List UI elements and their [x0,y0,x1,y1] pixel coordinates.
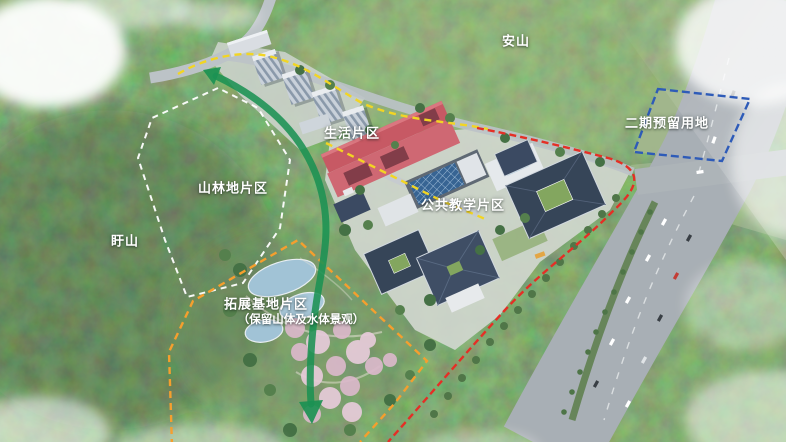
label-anshan: 安山 [502,31,530,50]
label-xushan: 盱山 [111,231,139,250]
site-plan-map: 安山 二期预留用地 生活片区 山林地片区 盱山 公共教学片区 拓展基地片区 （保… [0,0,786,442]
label-forest-zone: 山林地片区 [198,178,268,197]
haze-overlay [0,0,786,442]
label-teaching-zone: 公共教学片区 [421,195,505,214]
label-living-zone: 生活片区 [324,123,380,142]
label-expansion-zone: 拓展基地片区 [224,294,308,313]
label-phase2-reserved: 二期预留用地 [625,113,709,132]
aerial-rendering [0,0,786,442]
label-expansion-note: （保留山体及水体景观） [238,311,365,327]
